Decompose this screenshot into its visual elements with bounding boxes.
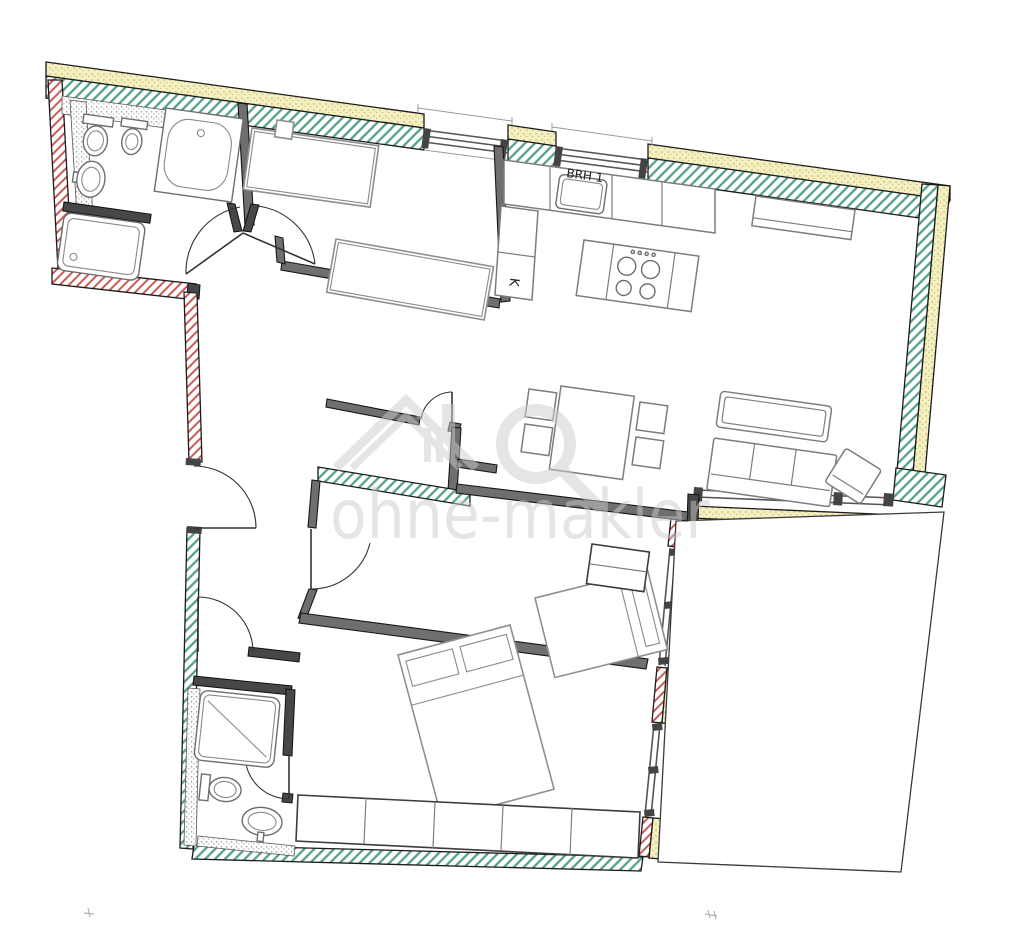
dining-chair	[632, 437, 664, 469]
wall-bedroom2-west-upper	[308, 480, 320, 528]
bedroom1-door	[198, 597, 253, 652]
bedroom-top-furniture	[243, 120, 493, 320]
sofa	[707, 438, 837, 507]
print-marks	[84, 908, 717, 919]
floorplan-canvas: K BRH 1	[0, 0, 1024, 925]
kitchen-island	[576, 240, 699, 312]
wall-slider-corner-masonry	[893, 468, 946, 507]
watermark-text: ohne-makler	[330, 476, 710, 555]
bidet	[117, 118, 148, 156]
dining-chair	[521, 424, 553, 456]
bathtub	[154, 108, 243, 202]
terrace	[658, 512, 944, 872]
shower-2	[194, 690, 281, 768]
entrance-door	[186, 458, 256, 534]
kitchen-fridge-cabinet: K	[495, 206, 538, 300]
toilet-2	[199, 774, 242, 804]
dining-chair	[636, 402, 668, 434]
wall-hall-bottom	[248, 647, 300, 662]
living-room-furniture	[521, 196, 882, 507]
shower-1	[55, 202, 152, 282]
bedroom2-furniture	[535, 544, 667, 678]
wall-bath2-right	[283, 689, 295, 756]
desk-top-bedroom	[327, 239, 494, 320]
bathroom-2	[184, 688, 295, 856]
wall-left-hall-brick	[184, 292, 202, 462]
floorplan-drawing: K BRH 1	[0, 0, 1024, 925]
washbasin-2	[240, 805, 283, 843]
coffee-table	[716, 391, 832, 442]
terrace-outline	[658, 512, 944, 872]
wall-bath2-jamb	[282, 793, 293, 803]
nightstand	[275, 120, 294, 139]
